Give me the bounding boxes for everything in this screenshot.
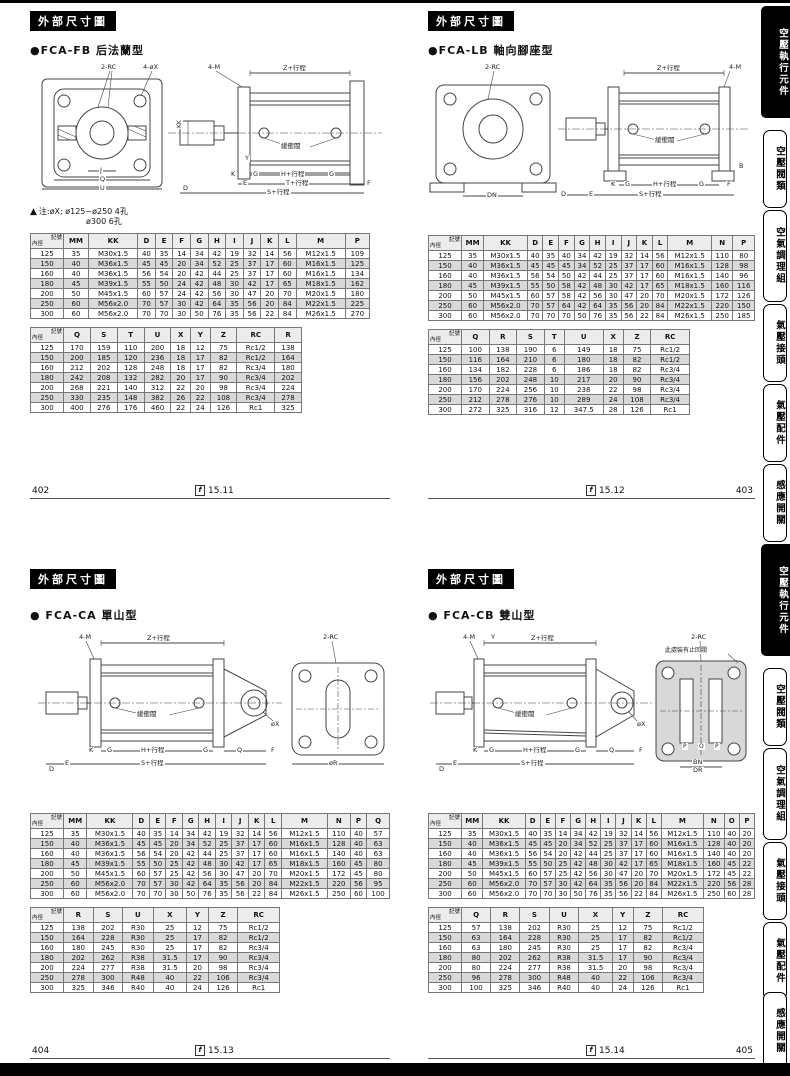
dim-cell: 47: [243, 289, 261, 299]
bore-cell: 150: [429, 933, 462, 943]
dim-cell: 98: [208, 963, 238, 973]
dim-cell: 34: [571, 839, 586, 849]
dim-label-z: Z+行程: [656, 65, 681, 72]
dim-cell: 17: [187, 933, 209, 943]
bore-cell: 300: [31, 983, 64, 993]
dim-cell: 138: [489, 345, 517, 355]
bore-cell: 200: [31, 869, 64, 879]
dim-label-z: Z+行程: [530, 635, 555, 642]
dim-cell: 34: [190, 259, 208, 269]
dim-label-k: K: [88, 747, 94, 754]
table-row: 20050M45x1.5605724425630472070M20x1.5180: [31, 289, 370, 299]
dim-cell: 42: [586, 829, 601, 839]
dim-label-rc: 2-RC: [690, 634, 707, 641]
column-header: X: [603, 330, 623, 345]
dim-cell: 202: [489, 375, 517, 385]
dim-cell: 138: [64, 923, 94, 933]
table-row: 12535M30x1.5403514344219321456M12x1.5109: [31, 249, 370, 259]
dim-cell: 278: [491, 973, 520, 983]
dim-cell: 126: [633, 983, 662, 993]
cushion-valve-label: 緩衝閥: [654, 137, 676, 144]
dim-cell: 17: [612, 953, 633, 963]
dim-cell: 17: [612, 943, 633, 953]
column-header: P: [350, 814, 367, 829]
dim-cell: M22x1.5: [281, 879, 327, 889]
dim-cell: 202: [275, 373, 302, 383]
dim-cell: 200: [64, 353, 91, 363]
bore-cell: 200: [429, 963, 462, 973]
dim-label-g2: G: [328, 171, 335, 178]
dim-cell: 24: [603, 395, 623, 405]
dim-cell: 60: [646, 849, 661, 859]
dim-cell: 30: [555, 879, 570, 889]
dim-cell: 24: [612, 983, 633, 993]
dim-cell: 24: [173, 279, 191, 289]
section-title-badge: 外部尺寸圖: [428, 11, 514, 31]
dim-cell: 42: [182, 869, 199, 879]
dim-cell: 90: [623, 375, 651, 385]
dim-cell: 35: [462, 251, 484, 261]
dim-cell: 42: [571, 869, 586, 879]
dim-cell: M30x1.5: [484, 251, 528, 261]
dim-cell: 95: [367, 879, 390, 889]
dim-label-holes: 4-øX: [142, 64, 159, 71]
dim-cell: 186: [564, 365, 603, 375]
dim-cell: 164: [489, 355, 517, 365]
lb-drawing: 2-RC Z+行程 4-M 緩衝閥 H+行程 S+行程 DN K G G E F…: [428, 63, 755, 203]
dim-cell: 25: [579, 943, 612, 953]
dim-cell: 56: [138, 269, 156, 279]
dim-cell: Rc3/4: [238, 973, 280, 983]
dim-cell: 28: [603, 405, 623, 415]
dim-cell: 22: [190, 393, 210, 403]
column-header: F: [166, 814, 183, 829]
dim-cell: 25: [601, 839, 616, 849]
dim-cell: 180: [275, 363, 302, 373]
dim-cell: 30: [605, 291, 621, 301]
dim-cell: 44: [590, 271, 606, 281]
dim-cell: Rc3/4: [238, 943, 280, 953]
dim-label-g: G: [624, 181, 631, 188]
column-header: Y: [612, 908, 633, 923]
dim-cell: 57: [367, 829, 390, 839]
table-row: 30060M56x2.0707030507635562284M26x1.5250…: [429, 889, 755, 899]
dim-cell: 460: [144, 403, 171, 413]
quadrant-cb: 外部尺寸圖 ● FCA-CB 雙山型: [428, 568, 755, 993]
dim-cell: 75: [623, 345, 651, 355]
column-header: P: [345, 234, 369, 249]
dim-cell: 42: [616, 859, 631, 869]
dim-cell: 35: [215, 879, 232, 889]
dim-cell: 17: [631, 849, 646, 859]
dim-cell: M56x2.0: [89, 299, 138, 309]
table-row: 300100325346R404024126Rc1: [429, 983, 704, 993]
dim-cell: 82: [210, 363, 237, 373]
dim-cell: 56: [279, 249, 297, 259]
column-header: M: [661, 814, 703, 829]
dim-cell: 140: [117, 383, 144, 393]
dim-cell: 42: [232, 859, 249, 869]
dim-cell: Rc3/4: [662, 943, 703, 953]
dim-cell: 40: [64, 269, 89, 279]
dim-cell: 312: [144, 383, 171, 393]
bore-cell: 180: [429, 859, 462, 869]
check-valve-note: 此處裝有止回閥: [664, 647, 708, 654]
dim-label-u: U: [99, 185, 106, 192]
dim-cell: 50: [462, 869, 483, 879]
column-header: S: [520, 908, 549, 923]
dim-cell: 17: [631, 859, 646, 869]
ca-dim-table-2: 記號內徑RSUXYZRC125138202R30251275Rc1/215016…: [30, 907, 280, 993]
column-header: Q: [462, 908, 491, 923]
table-row: 15040M36x1.5454520345225371760M16x1.5128…: [31, 839, 390, 849]
dim-cell: 40: [350, 829, 367, 839]
dim-cell: 18: [171, 353, 191, 363]
bore-cell: 180: [31, 953, 64, 963]
dim-cell: 17: [187, 943, 209, 953]
column-header: G: [574, 236, 590, 251]
dim-cell: 28: [739, 889, 754, 899]
dim-cell: 256: [517, 385, 545, 395]
dim-cell: 221: [90, 383, 117, 393]
dim-cell: M56x2.0: [87, 879, 133, 889]
column-header: J: [616, 814, 631, 829]
table-row: 300325346R404024126Rc1: [31, 983, 280, 993]
dim-cell: 35: [215, 889, 232, 899]
dim-cell: 45: [462, 281, 484, 291]
dim-cell: Rc3/4: [651, 395, 690, 405]
dim-cell: 185: [90, 353, 117, 363]
dim-cell: 48: [208, 279, 226, 289]
dim-label-e: E: [64, 760, 70, 767]
dim-cell: 63: [367, 839, 390, 849]
dim-cell: 110: [327, 829, 350, 839]
dim-cell: 30: [605, 281, 621, 291]
dim-cell: 70: [527, 311, 543, 321]
dim-cell: 40: [462, 849, 483, 859]
lb-dim-table-2: 記號內徑QRSTUXZRC12510013819061491875Rc1/215…: [428, 329, 690, 415]
dim-cell: 35: [601, 889, 616, 899]
dim-label-m: 4-M: [207, 64, 221, 71]
dim-cell: 14: [555, 829, 570, 839]
dim-label-g2: G: [202, 747, 209, 754]
dim-cell: 278: [489, 395, 517, 405]
table-row: 20050M45x1.5605725425630472070M20x1.5172…: [31, 869, 390, 879]
sidebar-tab-valves: 空壓閥類: [763, 668, 787, 746]
dim-cell: 37: [621, 271, 637, 281]
dim-label-g: G: [106, 747, 113, 754]
column-header: Y: [187, 908, 209, 923]
dim-cell: 45: [724, 859, 739, 869]
dim-cell: 108: [623, 395, 651, 405]
dim-cell: 42: [574, 281, 590, 291]
dim-cell: 262: [93, 953, 123, 963]
column-header: D: [527, 236, 543, 251]
dim-cell: M18x1.5: [668, 281, 712, 291]
dim-cell: 56: [243, 299, 261, 309]
section-ref: f15.11: [195, 485, 234, 496]
dim-cell: 228: [520, 933, 549, 943]
dim-cell: 18: [171, 363, 191, 373]
bore-cell: 160: [31, 269, 64, 279]
bore-cell: 150: [429, 261, 462, 271]
dim-cell: 50: [64, 869, 87, 879]
dim-cell: M16x1.5: [296, 259, 345, 269]
bore-cell: 125: [429, 251, 462, 261]
dim-cell: 70: [525, 879, 540, 889]
dim-cell: M16x1.5: [661, 839, 703, 849]
cushion-valve-label: 緩衝閥: [280, 143, 302, 150]
dim-cell: 64: [559, 301, 575, 311]
dim-cell: 34: [574, 261, 590, 271]
dim-cell: 90: [208, 953, 238, 963]
dim-cell: 42: [190, 269, 208, 279]
dim-cell: 149: [564, 345, 603, 355]
dim-cell: 160: [703, 859, 724, 869]
fb-schematic: [30, 63, 390, 203]
dim-cell: 20: [171, 373, 191, 383]
dim-cell: 64: [199, 879, 216, 889]
dim-cell: 84: [646, 879, 661, 889]
dim-cell: 42: [574, 291, 590, 301]
bore-cell: 125: [31, 923, 64, 933]
dim-cell: 250: [711, 311, 732, 321]
dim-cell: 40: [559, 251, 575, 261]
dim-cell: 42: [182, 879, 199, 889]
dim-cell: 60: [265, 849, 282, 859]
dim-label-g2: G: [698, 181, 705, 188]
bore-cell: 150: [429, 355, 462, 365]
table-row: 15040M36x1.5454520345225371760M16x1.5128…: [429, 839, 755, 849]
dim-cell: 25: [166, 869, 183, 879]
column-header: P: [733, 236, 755, 251]
dim-cell: 50: [571, 889, 586, 899]
dim-cell: 55: [525, 859, 540, 869]
dim-cell: 128: [703, 839, 724, 849]
dim-cell: 228: [517, 365, 545, 375]
dim-label-m: 4-M: [78, 634, 92, 641]
dim-label-q: Q: [608, 747, 615, 754]
bore-cell: 200: [31, 383, 64, 393]
dim-label-h: H+行程: [522, 747, 547, 754]
dim-label-q: Q: [99, 176, 106, 183]
dim-cell: 170: [462, 385, 490, 395]
bore-cell: 250: [429, 395, 462, 405]
dim-cell: Rc3/4: [662, 953, 703, 963]
dim-cell: 40: [462, 839, 483, 849]
dim-cell: 64: [208, 299, 226, 309]
dim-cell: 172: [327, 869, 350, 879]
dim-cell: 30: [555, 889, 570, 899]
table-row: 16013418222861861882Rc3/4: [429, 365, 690, 375]
table-row: 20050M45x1.5605758425630472070M20x1.5172…: [429, 291, 755, 301]
column-header: D: [525, 814, 540, 829]
dim-cell: 57: [543, 301, 559, 311]
dim-cell: R38: [549, 963, 579, 973]
dim-cell: 126: [733, 291, 755, 301]
dim-cell: 50: [64, 289, 89, 299]
table-row: 3004002761764602224126Rc1325: [31, 403, 302, 413]
dim-cell: M36x1.5: [87, 849, 133, 859]
table-row: 200224277R3831.52098Rc3/4: [31, 963, 280, 973]
corner-cell: 記號內徑: [429, 236, 462, 251]
dim-cell: 42: [190, 299, 208, 309]
dim-cell: M36x1.5: [89, 269, 138, 279]
dim-cell: 14: [261, 249, 279, 259]
dim-cell: 22: [739, 859, 754, 869]
dim-cell: 6: [544, 355, 564, 365]
dim-cell: 32: [232, 829, 249, 839]
dim-cell: 19: [605, 251, 621, 261]
dim-cell: 50: [149, 859, 166, 869]
column-header: E: [543, 236, 559, 251]
dim-cell: 80: [462, 963, 491, 973]
table-row: 160180245R30251782Rc3/4: [31, 943, 280, 953]
dim-cell: 300: [520, 973, 549, 983]
dim-cell: 45: [462, 859, 483, 869]
bore-cell: 180: [429, 281, 462, 291]
dim-cell: 22: [612, 973, 633, 983]
dim-cell: 56: [525, 849, 540, 859]
dim-label-d: D: [182, 185, 189, 192]
dim-cell: 30: [601, 859, 616, 869]
table-row: 180202262R3831.51790Rc3/4: [31, 953, 280, 963]
dim-cell: 45: [559, 261, 575, 271]
section-title-badge: 外部尺寸圖: [428, 569, 514, 589]
column-header: G: [571, 814, 586, 829]
table-row: 30060M56x2.0707030507635562284M26x1.5250…: [31, 889, 390, 899]
column-header: E: [155, 234, 173, 249]
sidebar-tab-air-units: 空氣調理組: [763, 210, 787, 302]
dim-label-s: S+行程: [520, 760, 545, 767]
dim-cell: Rc1: [651, 405, 690, 415]
table-row: 15040M36x1.5454545345225371760M16x1.5128…: [429, 261, 755, 271]
dim-cell: M39x1.5: [89, 279, 138, 289]
page-number: 404: [32, 1046, 49, 1056]
column-header: P: [739, 814, 754, 829]
page-bottom-bar: [0, 1063, 790, 1076]
dim-cell: 20: [248, 869, 265, 879]
dim-label-h: H+行程: [652, 181, 677, 188]
dim-cell: 160: [711, 281, 732, 291]
sidebar-tab-accessories: 氣壓配件: [763, 384, 787, 462]
dim-cell: 37: [616, 839, 631, 849]
table-row: 18045M39x1.5555025424830421765M18x1.5160…: [429, 859, 755, 869]
dim-cell: 212: [64, 363, 91, 373]
dim-cell: 76: [586, 889, 601, 899]
dim-cell: 84: [265, 879, 282, 889]
dim-cell: 202: [90, 363, 117, 373]
dim-cell: 45: [724, 869, 739, 879]
dim-cell: 20: [261, 289, 279, 299]
dim-cell: 18: [603, 345, 623, 355]
dim-cell: Rc3/4: [651, 385, 690, 395]
cushion-valve-label: 緩衝閥: [136, 711, 158, 718]
dim-cell: 30: [166, 879, 183, 889]
column-header: K: [631, 814, 646, 829]
dim-cell: 40: [350, 839, 367, 849]
dim-cell: 325: [491, 983, 520, 993]
table-row: 30060M56x2.0707070507635562284M26x1.5250…: [429, 311, 755, 321]
dim-cell: 20: [631, 879, 646, 889]
dim-cell: 70: [138, 309, 156, 319]
dim-label-h: H+行程: [140, 747, 165, 754]
bore-cell: 180: [31, 373, 64, 383]
bore-cell: 160: [429, 849, 462, 859]
dim-cell: 17: [637, 281, 653, 291]
page-number: 405: [736, 1046, 753, 1056]
dim-cell: Rc3/4: [237, 393, 275, 403]
dim-cell: 60: [527, 291, 543, 301]
dim-label-s: S+行程: [638, 191, 663, 198]
dim-cell: 60: [462, 311, 484, 321]
dim-cell: 63: [462, 943, 491, 953]
dim-cell: 100: [367, 889, 390, 899]
dim-cell: 17: [631, 839, 646, 849]
dim-cell: 56: [590, 291, 606, 301]
dim-cell: 268: [64, 383, 91, 393]
bore-cell: 160: [429, 271, 462, 281]
dim-cell: 17: [637, 271, 653, 281]
table-row: 20050M45x1.5605725425630472070M20x1.5172…: [429, 869, 755, 879]
dim-cell: R38: [123, 953, 153, 963]
note-line1: 注:øX; ø125~ø250 4孔: [39, 207, 128, 216]
column-header: F: [555, 814, 570, 829]
dim-cell: 202: [520, 923, 549, 933]
dim-cell: 70: [525, 889, 540, 899]
dim-cell: 60: [525, 869, 540, 879]
dim-cell: 37: [621, 261, 637, 271]
dim-cell: 42: [571, 879, 586, 889]
dim-cell: 125: [345, 259, 369, 269]
column-header: X: [579, 908, 612, 923]
dim-cell: 48: [590, 281, 606, 291]
ref-number: 15.12: [599, 486, 625, 496]
dim-cell: 30: [173, 299, 191, 309]
dim-label-f: F: [366, 180, 372, 187]
dim-label-h: H+行程: [280, 171, 305, 178]
dim-cell: 262: [520, 953, 549, 963]
dim-label-p1: P: [682, 743, 688, 750]
column-header: Z: [208, 908, 238, 923]
dim-cell: 57: [155, 289, 173, 299]
table-row: 2502122782761028924108Rc3/4: [429, 395, 690, 405]
dim-cell: R30: [123, 923, 153, 933]
dim-cell: 14: [166, 829, 183, 839]
dim-cell: 98: [210, 383, 237, 393]
dim-cell: 60: [64, 309, 89, 319]
dim-cell: 76: [208, 309, 226, 319]
dim-cell: 22: [261, 309, 279, 319]
dim-cell: R48: [123, 973, 153, 983]
dim-cell: R30: [123, 933, 153, 943]
dim-label-z: Z+行程: [146, 635, 171, 642]
dim-cell: Rc1/2: [237, 343, 275, 353]
dim-cell: 56: [646, 829, 661, 839]
dim-cell: 210: [517, 355, 545, 365]
column-header: J: [243, 234, 261, 249]
section-ref: f15.13: [195, 1045, 234, 1056]
model-title-lb: ●FCA-LB 軸向腳座型: [428, 42, 755, 58]
dim-cell: 60: [279, 259, 297, 269]
dim-cell: 60: [462, 879, 483, 889]
dim-cell: M56x2.0: [87, 889, 133, 899]
dim-cell: 18: [603, 365, 623, 375]
dim-label-r: øR: [328, 760, 339, 767]
dim-cell: 22: [631, 889, 646, 899]
dim-cell: 65: [265, 859, 282, 869]
dim-cell: 106: [208, 973, 238, 983]
